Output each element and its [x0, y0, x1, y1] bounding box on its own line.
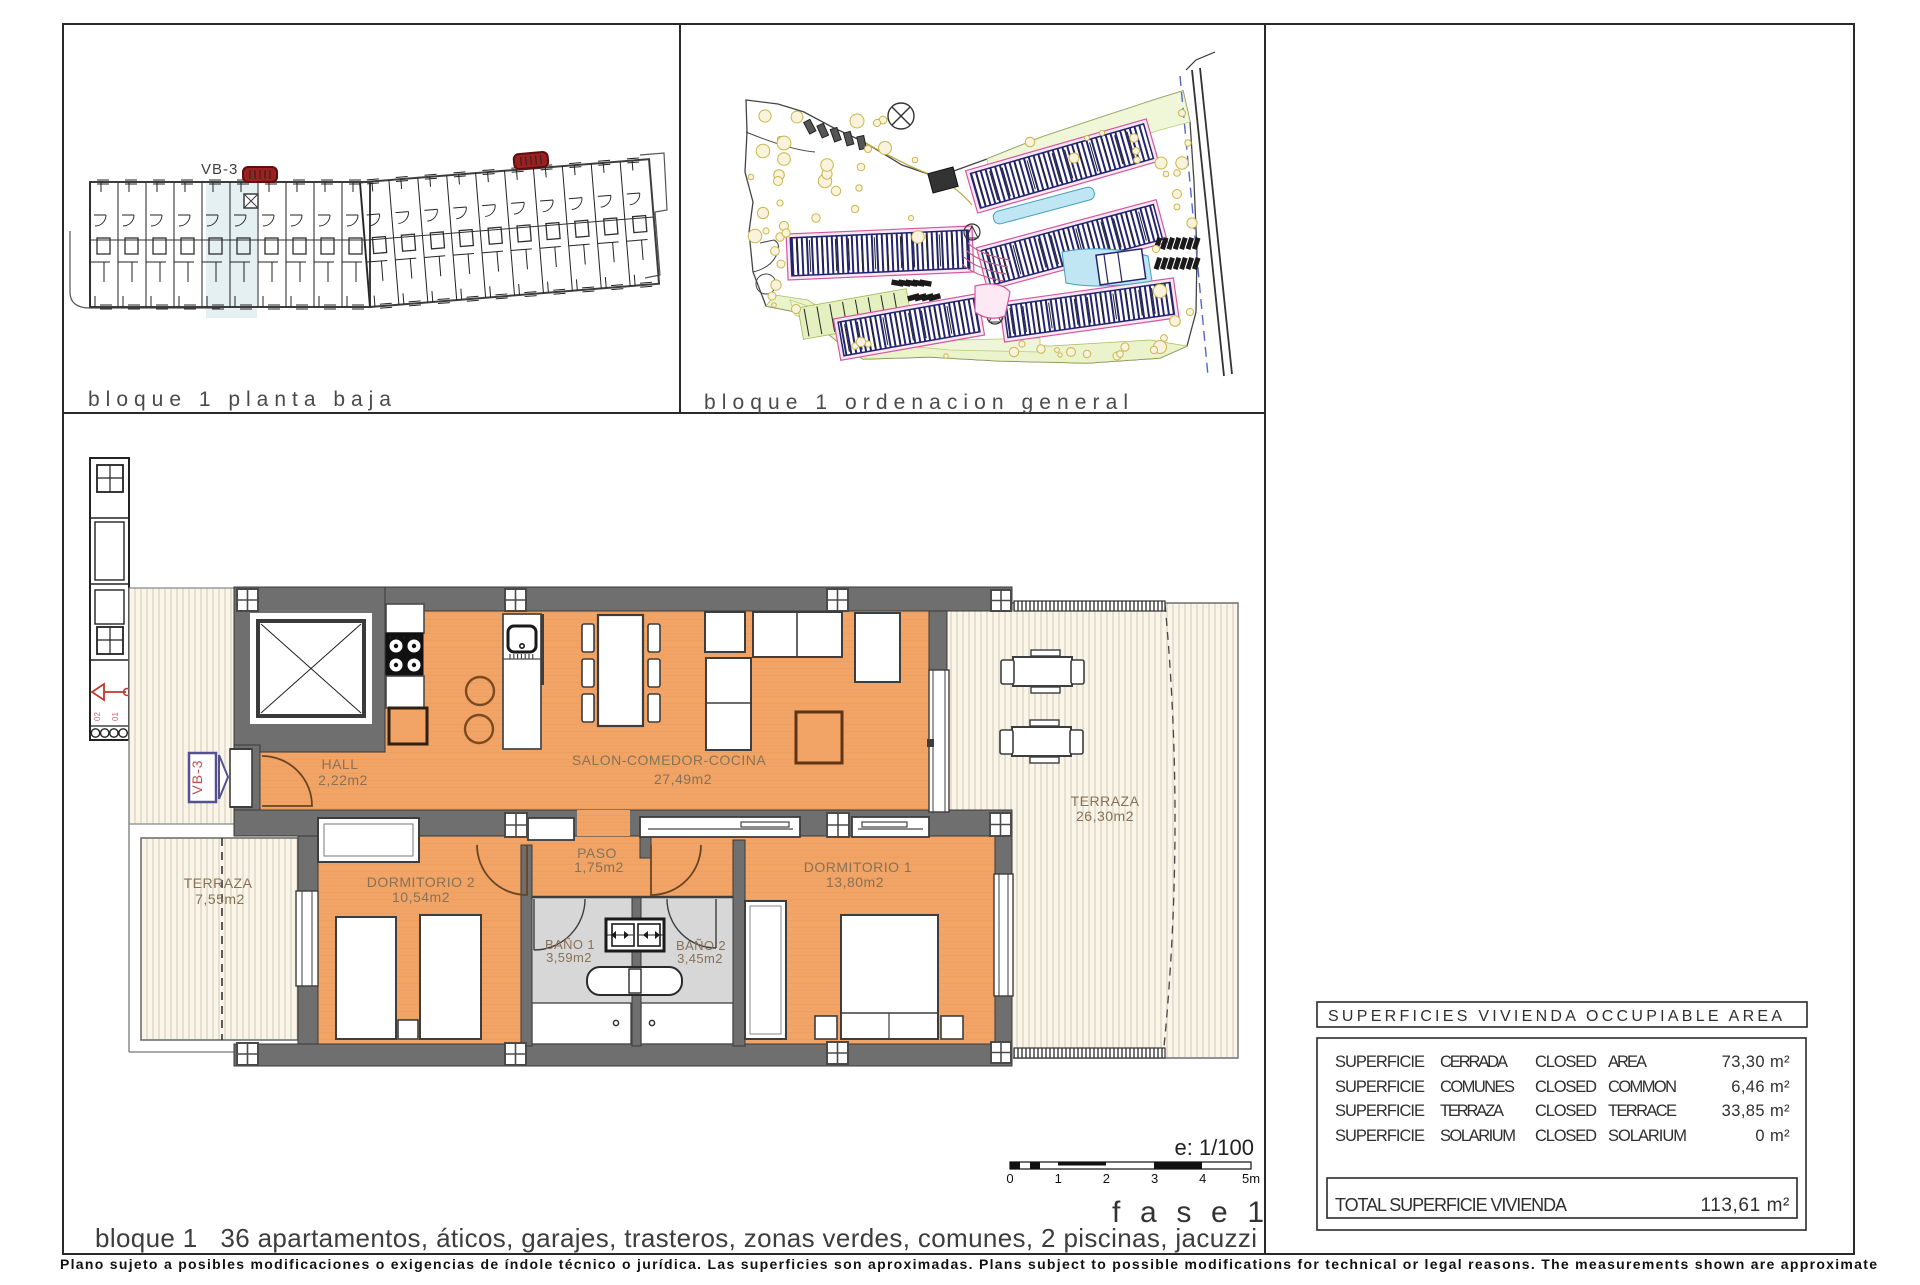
- svg-text:CLOSED: CLOSED: [1535, 1102, 1597, 1120]
- svg-text:7,55m2: 7,55m2: [195, 891, 245, 907]
- svg-text:SALON-COMEDOR-COCINA: SALON-COMEDOR-COCINA: [572, 752, 767, 768]
- svg-text:Plano sujeto a posibles mo: Plano sujeto a posibles modificaciones o…: [60, 1256, 1877, 1272]
- svg-text:4: 4: [1199, 1171, 1206, 1186]
- svg-text:113,61 m²: 113,61 m²: [1700, 1195, 1790, 1216]
- svg-text:2: 2: [1103, 1171, 1110, 1186]
- svg-text:5m: 5m: [1242, 1171, 1260, 1186]
- svg-text:3,59m2: 3,59m2: [546, 950, 592, 965]
- svg-text:TERRAZA: TERRAZA: [1071, 793, 1140, 809]
- svg-text:TERRACE: TERRACE: [1608, 1102, 1677, 1120]
- svg-text:VB-3: VB-3: [189, 759, 205, 794]
- svg-text:2,22m2: 2,22m2: [318, 772, 368, 788]
- svg-text:DORMITORIO 1: DORMITORIO 1: [804, 859, 912, 875]
- svg-text:CERRADA: CERRADA: [1440, 1053, 1508, 1071]
- svg-text:0 m²: 0 m²: [1755, 1127, 1790, 1145]
- svg-text:CLOSED: CLOSED: [1535, 1053, 1597, 1071]
- svg-text:3,45m2: 3,45m2: [677, 951, 723, 966]
- svg-text:CLOSED: CLOSED: [1535, 1078, 1597, 1096]
- svg-text:SUPERFICIES VIVIENDA OCCUPIA: SUPERFICIES VIVIENDA OCCUPIABLE AREA: [1328, 1008, 1782, 1025]
- svg-text:bloque 1 ordenacion general: bloque 1 ordenacion general: [704, 391, 1128, 414]
- svg-text:0: 0: [1006, 1171, 1013, 1186]
- svg-text:DORMITORIO 2: DORMITORIO 2: [367, 874, 475, 890]
- svg-text:33,85 m²: 33,85 m²: [1722, 1102, 1790, 1120]
- svg-text:SUPERFICIE: SUPERFICIE: [1335, 1053, 1425, 1071]
- svg-text:SOLARIUM: SOLARIUM: [1608, 1127, 1687, 1145]
- svg-text:27,49m2: 27,49m2: [654, 771, 712, 787]
- svg-text:SUPERFICIE: SUPERFICIE: [1335, 1102, 1425, 1120]
- svg-text:AREA: AREA: [1608, 1053, 1647, 1071]
- svg-text:SUPERFICIE: SUPERFICIE: [1335, 1078, 1425, 1096]
- svg-text:10,54m2: 10,54m2: [392, 889, 450, 905]
- svg-text:6,46 m²: 6,46 m²: [1731, 1078, 1790, 1096]
- svg-text:SOLARIUM: SOLARIUM: [1440, 1127, 1516, 1145]
- svg-text:e: 1/100: e: 1/100: [1174, 1135, 1254, 1160]
- svg-text:HALL: HALL: [321, 756, 358, 772]
- svg-text:1,75m2: 1,75m2: [574, 859, 624, 875]
- svg-text:TERRAZA: TERRAZA: [1440, 1102, 1504, 1120]
- svg-text:01: 01: [111, 712, 120, 721]
- svg-text:COMMON: COMMON: [1608, 1078, 1677, 1096]
- svg-text:SUPERFICIE: SUPERFICIE: [1335, 1127, 1425, 1145]
- svg-text:CLOSED: CLOSED: [1535, 1127, 1597, 1145]
- svg-text:TOTAL SUPERFICIE VIVIENDA: TOTAL SUPERFICIE VIVIENDA: [1335, 1195, 1567, 1215]
- svg-text:VB-3: VB-3: [201, 161, 238, 178]
- svg-text:COMUNES: COMUNES: [1440, 1078, 1515, 1096]
- svg-text:1: 1: [1055, 1171, 1062, 1186]
- svg-text:bloque 1 36 apartamentos, át: bloque 1 36 apartamentos, áticos, garaje…: [95, 1223, 1257, 1253]
- svg-text:26,30m2: 26,30m2: [1076, 808, 1134, 824]
- svg-text:73,30 m²: 73,30 m²: [1722, 1053, 1790, 1071]
- svg-text:3: 3: [1151, 1171, 1158, 1186]
- svg-text:02: 02: [93, 712, 102, 721]
- svg-text:13,80m2: 13,80m2: [826, 874, 884, 890]
- svg-text:TERRAZA: TERRAZA: [184, 875, 253, 891]
